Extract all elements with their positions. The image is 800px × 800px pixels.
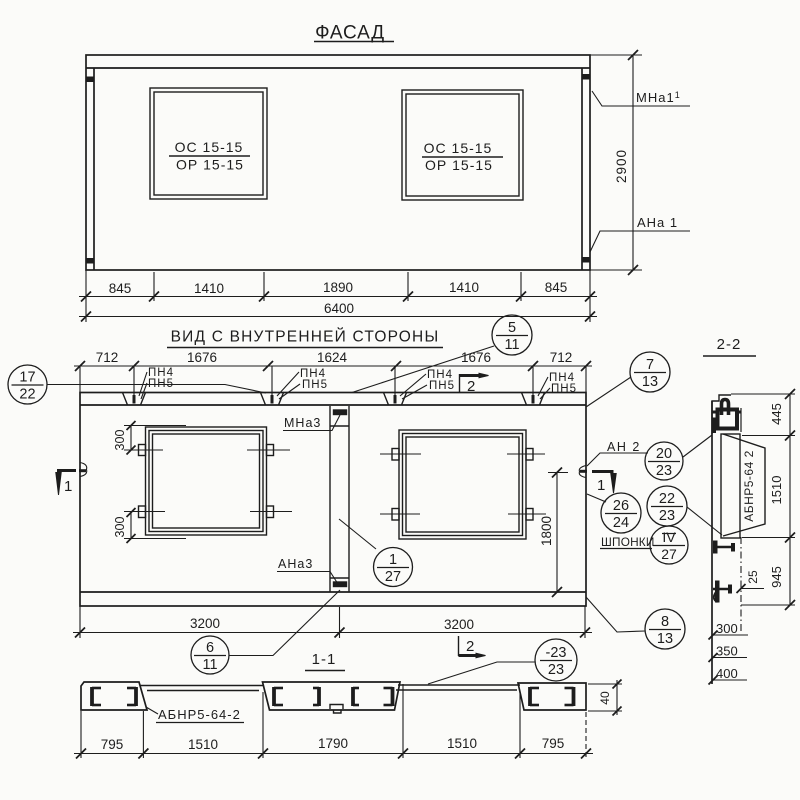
svg-text:1510: 1510 xyxy=(447,736,477,751)
svg-text:27: 27 xyxy=(661,546,677,562)
svg-text:23: 23 xyxy=(548,662,564,678)
svg-text:2900: 2900 xyxy=(614,149,629,183)
svg-text:2-2: 2-2 xyxy=(717,336,742,353)
svg-text:712: 712 xyxy=(550,350,573,365)
svg-text:300: 300 xyxy=(113,517,127,538)
svg-text:13: 13 xyxy=(642,374,658,390)
svg-text:1510: 1510 xyxy=(188,737,218,752)
svg-text:945: 945 xyxy=(769,566,784,588)
svg-text:24: 24 xyxy=(613,515,629,531)
svg-text:23: 23 xyxy=(656,463,672,479)
svg-text:845: 845 xyxy=(545,280,568,295)
svg-text:40: 40 xyxy=(598,691,612,705)
svg-text:20: 20 xyxy=(656,446,672,462)
svg-text:АБНР5-64 2: АБНР5-64 2 xyxy=(742,450,756,522)
svg-text:ОС 15-15: ОС 15-15 xyxy=(175,139,244,155)
svg-text:ФАСАД: ФАСАД xyxy=(315,23,385,44)
svg-text:795: 795 xyxy=(101,737,124,752)
svg-text:1410: 1410 xyxy=(449,280,479,295)
svg-text:ПН5: ПН5 xyxy=(429,380,455,392)
svg-text:АБНР5-64-2: АБНР5-64-2 xyxy=(158,707,241,722)
svg-text:1624: 1624 xyxy=(317,350,348,365)
svg-text:2: 2 xyxy=(467,378,475,395)
svg-text:17: 17 xyxy=(19,370,35,386)
svg-text:1410: 1410 xyxy=(194,281,224,296)
svg-text:ОС 15-15: ОС 15-15 xyxy=(424,140,493,156)
svg-text:1: 1 xyxy=(597,477,605,494)
svg-text:445: 445 xyxy=(769,403,784,425)
svg-text:АНа 1: АНа 1 xyxy=(637,215,678,230)
svg-text:6400: 6400 xyxy=(324,301,354,316)
svg-text:712: 712 xyxy=(96,350,119,365)
svg-text:5: 5 xyxy=(508,320,516,336)
svg-text:23: 23 xyxy=(659,508,675,524)
svg-text:IV: IV xyxy=(662,529,676,545)
svg-text:ВИД С ВНУТРЕННЕЙ СТОРОНЫ: ВИД С ВНУТРЕННЕЙ СТОРОНЫ xyxy=(171,328,440,346)
svg-text:1510: 1510 xyxy=(769,476,784,505)
svg-text:-23: -23 xyxy=(546,645,567,661)
svg-text:22: 22 xyxy=(659,491,675,507)
svg-text:1790: 1790 xyxy=(318,736,348,751)
svg-text:АНа3: АНа3 xyxy=(278,557,313,571)
svg-text:25: 25 xyxy=(746,570,760,584)
svg-text:2: 2 xyxy=(466,638,474,655)
svg-text:26: 26 xyxy=(613,498,629,514)
svg-text:350: 350 xyxy=(716,644,738,659)
svg-text:1-1: 1-1 xyxy=(312,651,337,668)
svg-text:795: 795 xyxy=(542,736,565,751)
svg-text:МНа11: МНа11 xyxy=(636,90,681,105)
svg-text:1676: 1676 xyxy=(187,350,217,365)
svg-text:300: 300 xyxy=(113,430,127,451)
svg-text:3200: 3200 xyxy=(190,616,220,631)
svg-text:1890: 1890 xyxy=(323,280,353,295)
svg-text:ОР 15-15: ОР 15-15 xyxy=(425,157,493,173)
svg-text:3200: 3200 xyxy=(444,617,474,632)
svg-text:13: 13 xyxy=(657,631,673,647)
svg-text:27: 27 xyxy=(385,569,401,585)
svg-text:11: 11 xyxy=(504,337,519,353)
svg-text:400: 400 xyxy=(716,666,738,681)
svg-text:7: 7 xyxy=(646,357,654,373)
svg-text:8: 8 xyxy=(661,614,669,630)
svg-text:11: 11 xyxy=(202,657,217,673)
svg-text:ПН5: ПН5 xyxy=(551,383,577,395)
svg-text:845: 845 xyxy=(109,281,132,296)
svg-text:300: 300 xyxy=(716,621,738,636)
svg-text:6: 6 xyxy=(206,640,214,656)
svg-text:АН 2: АН 2 xyxy=(607,440,641,454)
svg-text:22: 22 xyxy=(19,387,35,403)
svg-text:1: 1 xyxy=(389,552,397,568)
svg-text:1: 1 xyxy=(64,478,72,495)
svg-text:ПН5: ПН5 xyxy=(302,379,328,391)
svg-text:ОР 15-15: ОР 15-15 xyxy=(176,157,244,173)
svg-text:ШПОНКИ: ШПОНКИ xyxy=(601,535,655,549)
svg-text:1800: 1800 xyxy=(539,516,554,546)
svg-text:МНа3: МНа3 xyxy=(284,416,321,430)
